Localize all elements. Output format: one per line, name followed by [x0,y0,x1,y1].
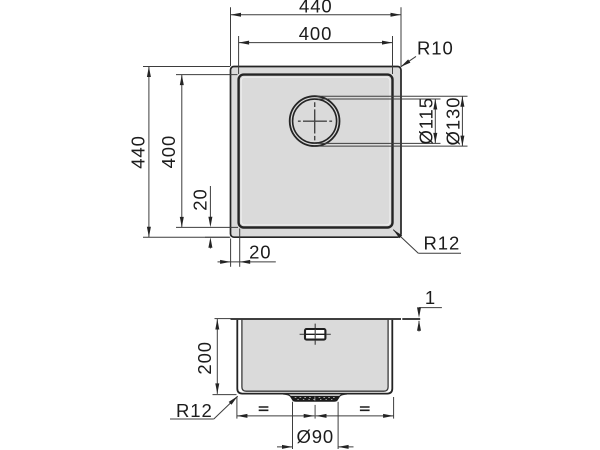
svg-text:200: 200 [194,341,215,375]
svg-text:440: 440 [128,135,149,169]
svg-text:Ø130: Ø130 [442,97,463,146]
svg-text:R12: R12 [424,233,461,254]
svg-text:440: 440 [299,0,333,16]
svg-text:400: 400 [299,23,333,44]
svg-text:20: 20 [249,241,271,262]
svg-text:Ø90: Ø90 [296,426,334,447]
svg-text:Ø115: Ø115 [415,97,436,144]
svg-text:400: 400 [158,135,179,169]
svg-text:1: 1 [425,287,436,308]
svg-text:R12: R12 [176,400,213,421]
svg-text:R10: R10 [417,38,454,59]
svg-text:20: 20 [190,188,211,210]
